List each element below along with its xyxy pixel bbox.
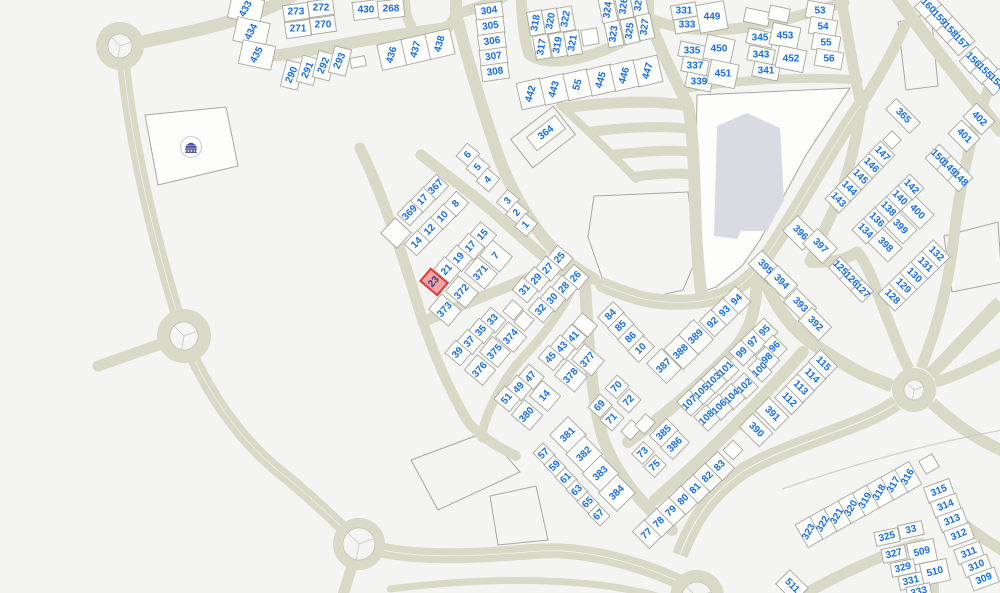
svg-text:449: 449 xyxy=(704,12,721,23)
svg-text:452: 452 xyxy=(783,54,800,65)
svg-text:53: 53 xyxy=(814,6,826,17)
svg-text:54: 54 xyxy=(817,22,829,33)
svg-text:331: 331 xyxy=(676,6,693,17)
svg-text:450: 450 xyxy=(711,44,728,55)
svg-text:430: 430 xyxy=(358,5,375,16)
svg-text:333: 333 xyxy=(679,20,696,31)
svg-text:341: 341 xyxy=(758,66,775,77)
svg-text:343: 343 xyxy=(753,50,770,61)
svg-text:55: 55 xyxy=(820,38,832,49)
svg-text:272: 272 xyxy=(313,3,330,14)
svg-text:345: 345 xyxy=(752,33,769,44)
svg-text:339: 339 xyxy=(691,77,708,88)
svg-text:271: 271 xyxy=(290,24,307,35)
svg-text:335: 335 xyxy=(684,46,701,57)
svg-text:307: 307 xyxy=(484,50,502,63)
svg-text:451: 451 xyxy=(715,69,732,80)
svg-text:305: 305 xyxy=(481,20,499,33)
svg-text:268: 268 xyxy=(383,4,400,15)
svg-text:337: 337 xyxy=(687,61,704,72)
svg-text:273: 273 xyxy=(288,7,305,18)
svg-text:56: 56 xyxy=(823,54,835,65)
svg-text:453: 453 xyxy=(777,31,794,42)
svg-text:270: 270 xyxy=(315,20,332,31)
